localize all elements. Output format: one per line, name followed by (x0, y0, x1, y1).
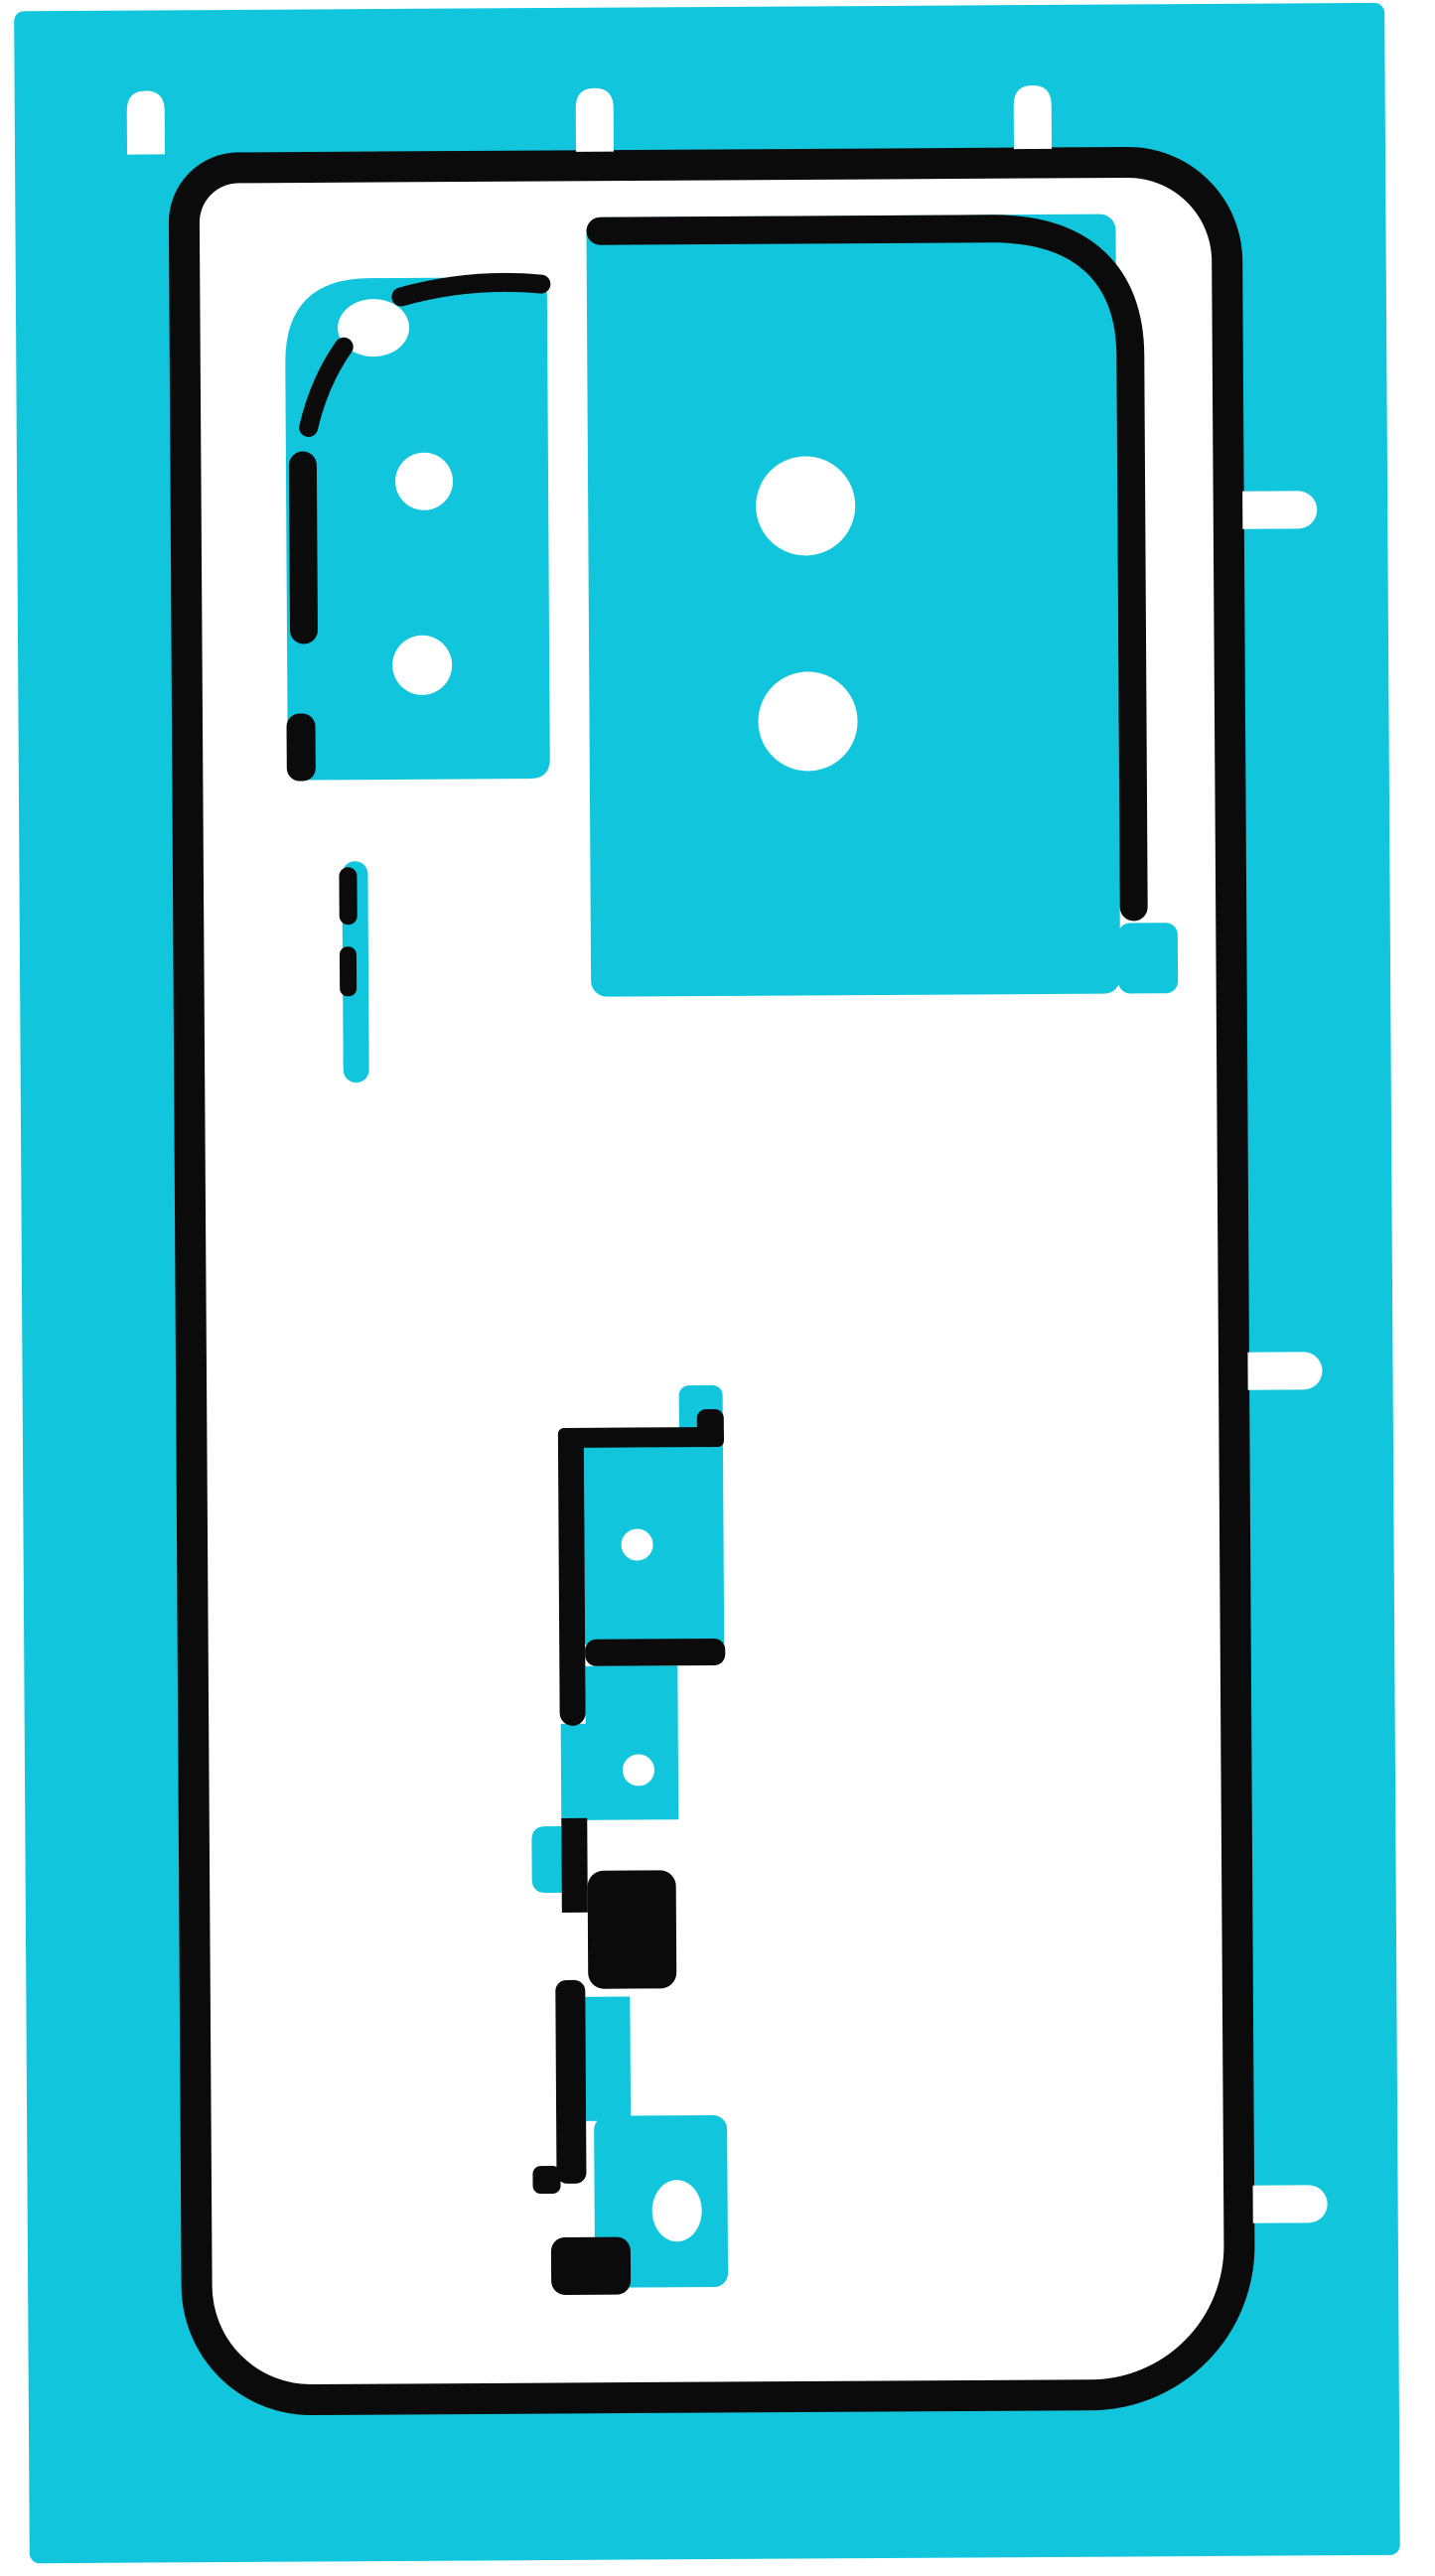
lower-strip-corner-block (551, 2237, 631, 2295)
front-camera-dash-left-short (286, 713, 315, 781)
lower-strip-panel-2-left (561, 1724, 588, 1820)
side-notch-lower (1253, 2185, 1328, 2222)
camera-lens-hole-lower (758, 671, 858, 772)
lower-strip-hole-2 (623, 1754, 654, 1786)
front-camera-dash-left-long (289, 451, 318, 644)
lower-strip-left-bar (558, 1431, 586, 1726)
camera-plate-patch (586, 215, 1120, 997)
lower-strip-oval-hole (651, 2180, 701, 2241)
lower-strip-z-upper (561, 1818, 588, 1913)
side-strip-dash-lower (340, 946, 357, 996)
adhesive-sheet-artwork (0, 0, 1435, 2576)
camera-lens-hole-upper (756, 456, 856, 556)
lower-strip-top-corner (697, 1409, 724, 1447)
front-camera-screw-hole-lower (392, 636, 452, 695)
lower-strip-z-lower-bar (555, 1980, 586, 2184)
lower-strip-left-nub (531, 1826, 561, 1893)
side-notch-upper (1242, 491, 1317, 528)
side-strip-dash-upper (339, 867, 357, 925)
lower-strip-panel-3 (580, 1997, 631, 2121)
product-photo-adhesive-sheet (0, 0, 1435, 2576)
front-camera-screw-hole-upper (395, 453, 453, 510)
lower-strip-z-block (588, 1870, 677, 1989)
lower-strip-step-nub (532, 2166, 560, 2194)
lower-strip-hole-1 (621, 1528, 652, 1560)
lower-strip-panel-2 (585, 1665, 678, 1820)
front-camera-patch (285, 277, 550, 781)
lower-strip-mid-bar (585, 1639, 725, 1666)
camera-plate-flange (1118, 923, 1178, 993)
side-notch-middle (1247, 1352, 1322, 1389)
pull-tab-top-right (1014, 85, 1052, 149)
lower-strip-panel-1 (584, 1445, 724, 1645)
pull-tab-top-center (576, 88, 614, 152)
sheet-group (14, 3, 1400, 2563)
pull-tab-top-left (127, 90, 165, 154)
